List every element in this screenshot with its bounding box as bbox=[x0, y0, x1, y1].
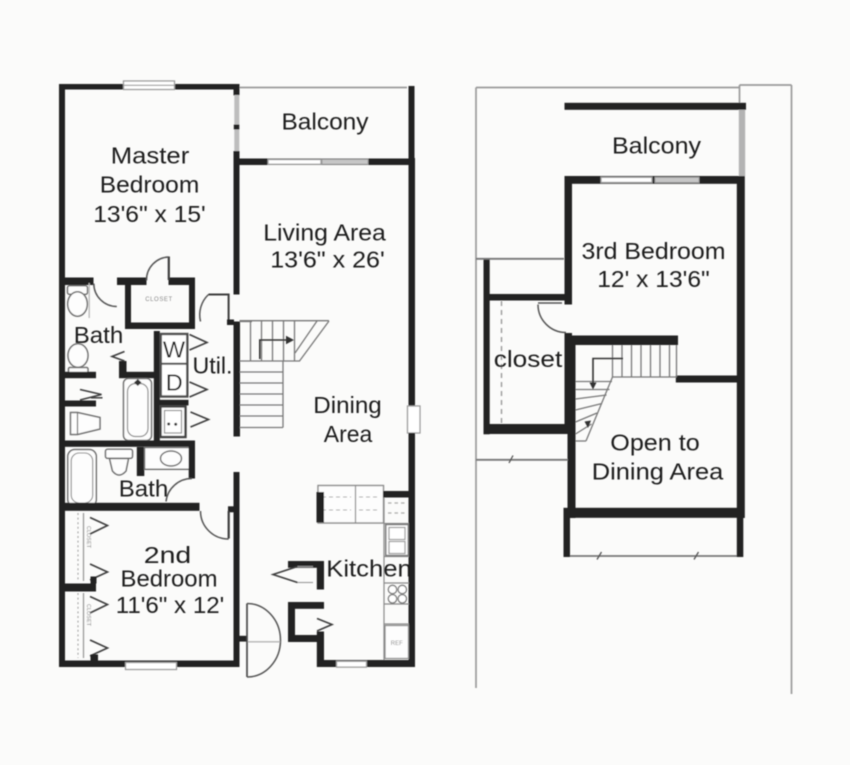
svg-text:CLOSET: CLOSET bbox=[145, 297, 173, 303]
svg-text:Master: Master bbox=[111, 143, 190, 169]
svg-text:Bedroom: Bedroom bbox=[121, 566, 218, 592]
svg-text:Kitchen: Kitchen bbox=[326, 556, 412, 582]
svg-text:Bath: Bath bbox=[119, 476, 169, 502]
svg-text:2nd: 2nd bbox=[144, 542, 192, 568]
svg-text:Dining Area: Dining Area bbox=[592, 459, 724, 485]
svg-text:CLOSET: CLOSET bbox=[85, 604, 91, 627]
svg-text:11'6" x 12': 11'6" x 12' bbox=[116, 592, 225, 618]
svg-text:Living Area: Living Area bbox=[263, 220, 386, 246]
svg-text:W: W bbox=[163, 337, 186, 363]
svg-text:closet: closet bbox=[494, 346, 563, 372]
svg-text:13'6" x 15': 13'6" x 15' bbox=[93, 201, 206, 227]
svg-text:REF: REF bbox=[391, 641, 403, 647]
svg-text:CLOSET: CLOSET bbox=[85, 526, 91, 549]
svg-text:Bedroom: Bedroom bbox=[100, 172, 200, 198]
svg-text:D: D bbox=[166, 370, 183, 396]
svg-text:Util.: Util. bbox=[193, 353, 233, 379]
svg-text:Balcony: Balcony bbox=[282, 109, 369, 135]
svg-text:Open to: Open to bbox=[610, 430, 700, 456]
svg-text:Balcony: Balcony bbox=[612, 133, 701, 159]
svg-text:13'6" x 26': 13'6" x 26' bbox=[270, 247, 385, 273]
svg-text:3rd Bedroom: 3rd Bedroom bbox=[582, 238, 726, 264]
svg-text:Area: Area bbox=[324, 421, 373, 447]
svg-text:12' x 13'6": 12' x 13'6" bbox=[597, 266, 710, 292]
svg-text:Dining: Dining bbox=[313, 392, 382, 418]
